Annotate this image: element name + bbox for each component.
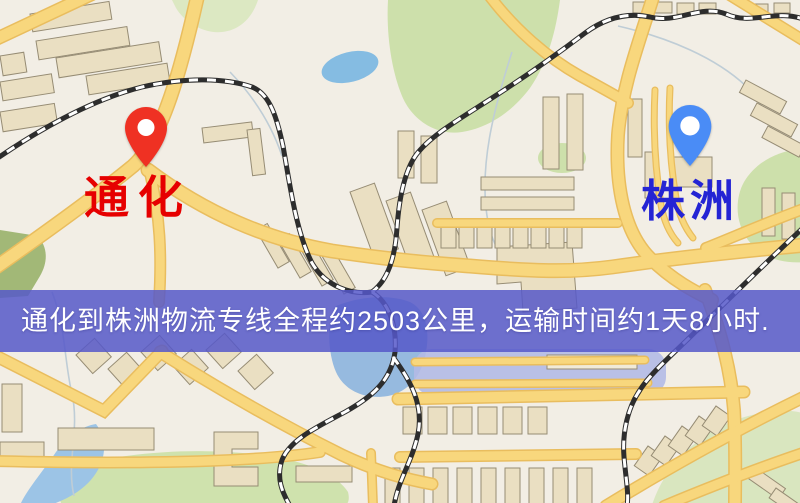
map-viewport: 通化 株洲 通化到株洲物流专线全程约2503公里，运输时间约1天8小时. xyxy=(0,0,800,503)
origin-pin[interactable] xyxy=(124,106,168,168)
route-info-text: 通化到株洲物流专线全程约2503公里，运输时间约1天8小时. xyxy=(0,290,800,352)
destination-city-label: 株洲 xyxy=(641,180,739,224)
location-pin-icon xyxy=(667,104,713,167)
destination-pin[interactable] xyxy=(667,104,713,167)
origin-city-label: 通化 xyxy=(84,176,192,221)
map-canvas xyxy=(0,0,800,503)
route-info-banner: 通化到株洲物流专线全程约2503公里，运输时间约1天8小时. xyxy=(0,290,800,352)
location-pin-icon xyxy=(124,106,168,168)
